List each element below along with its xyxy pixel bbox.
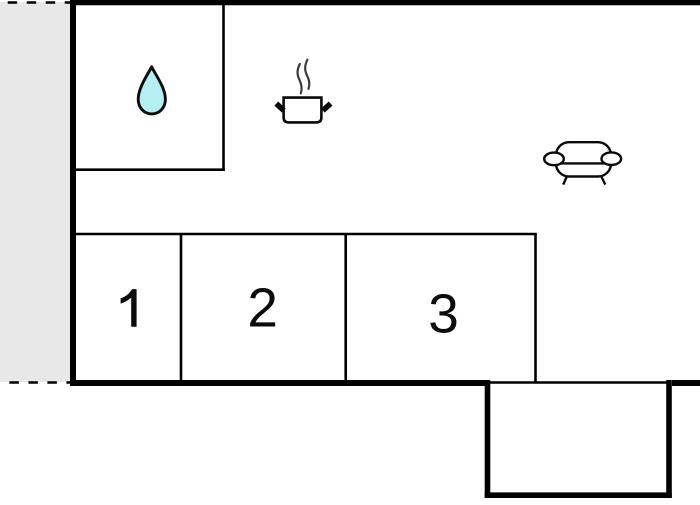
svg-text:3: 3 bbox=[428, 283, 459, 345]
svg-text:2: 2 bbox=[247, 277, 278, 339]
